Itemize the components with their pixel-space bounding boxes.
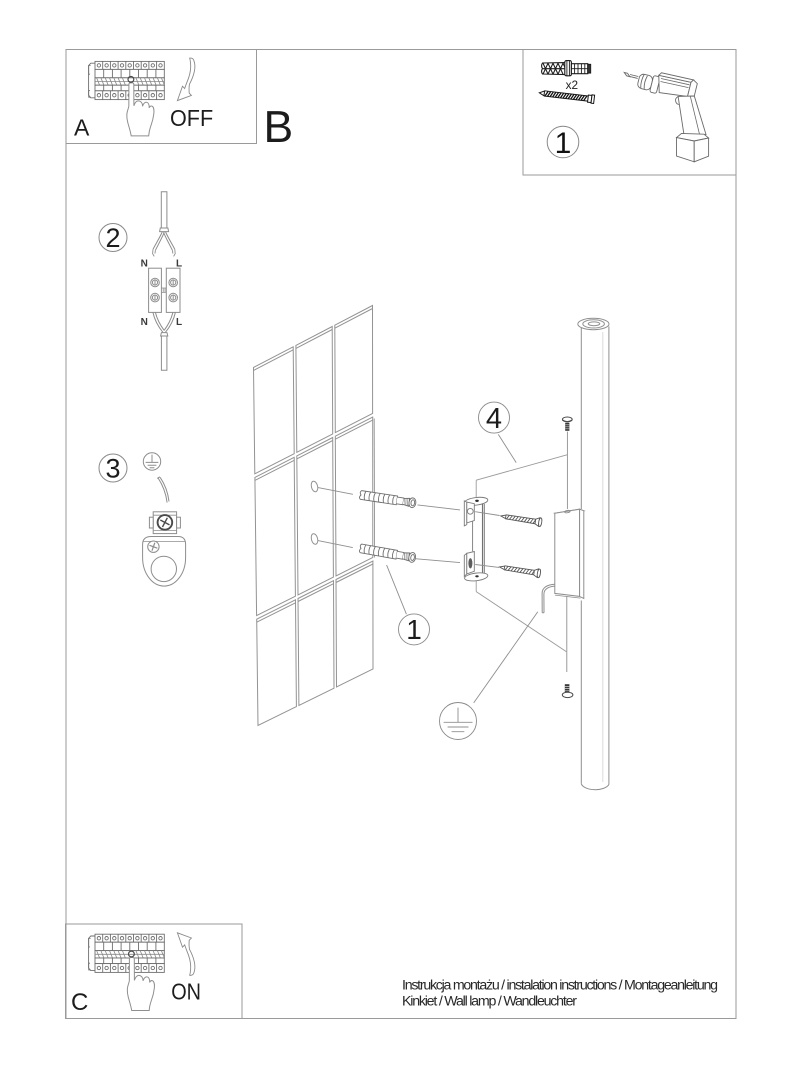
svg-text:C: C [71, 989, 88, 1016]
svg-text:L: L [176, 317, 182, 328]
svg-text:N: N [141, 317, 148, 328]
svg-text:2: 2 [105, 223, 120, 253]
svg-text:L: L [176, 258, 182, 269]
svg-text:4: 4 [486, 403, 502, 435]
svg-text:3: 3 [105, 454, 120, 484]
svg-text:x2: x2 [566, 78, 578, 92]
svg-text:A: A [74, 114, 90, 140]
svg-text:Instrukcja montażu / instalati: Instrukcja montażu / instalation instruc… [402, 978, 718, 994]
svg-text:B: B [264, 103, 294, 152]
svg-text:1: 1 [406, 614, 422, 645]
svg-text:ON: ON [171, 979, 201, 1005]
svg-text:N: N [141, 258, 148, 269]
svg-text:OFF: OFF [170, 105, 213, 131]
svg-text:1: 1 [555, 127, 572, 160]
svg-text:Kinkiet / Wall lamp / Wandleuc: Kinkiet / Wall lamp / Wandleuchter [402, 994, 577, 1010]
